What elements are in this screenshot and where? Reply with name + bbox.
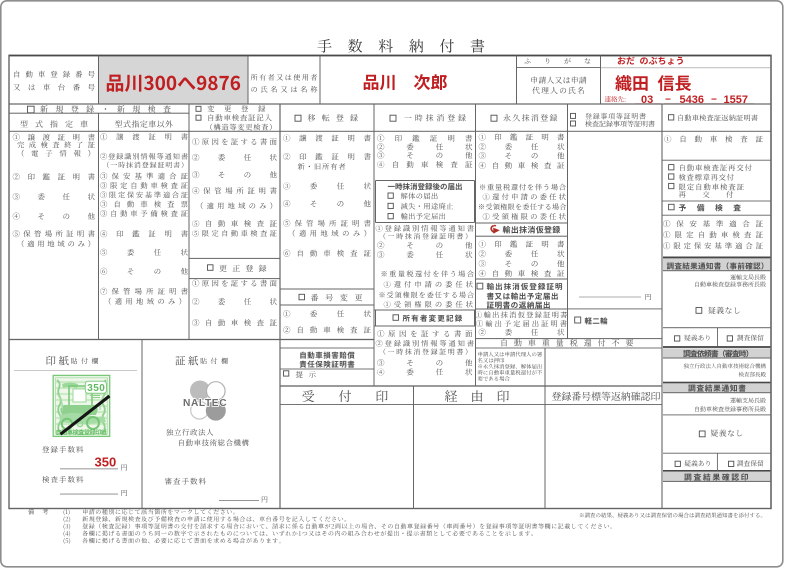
svg-text:NALTEC: NALTEC xyxy=(183,398,227,409)
svg-text:350: 350 xyxy=(95,455,117,470)
svg-text:350: 350 xyxy=(87,383,105,394)
